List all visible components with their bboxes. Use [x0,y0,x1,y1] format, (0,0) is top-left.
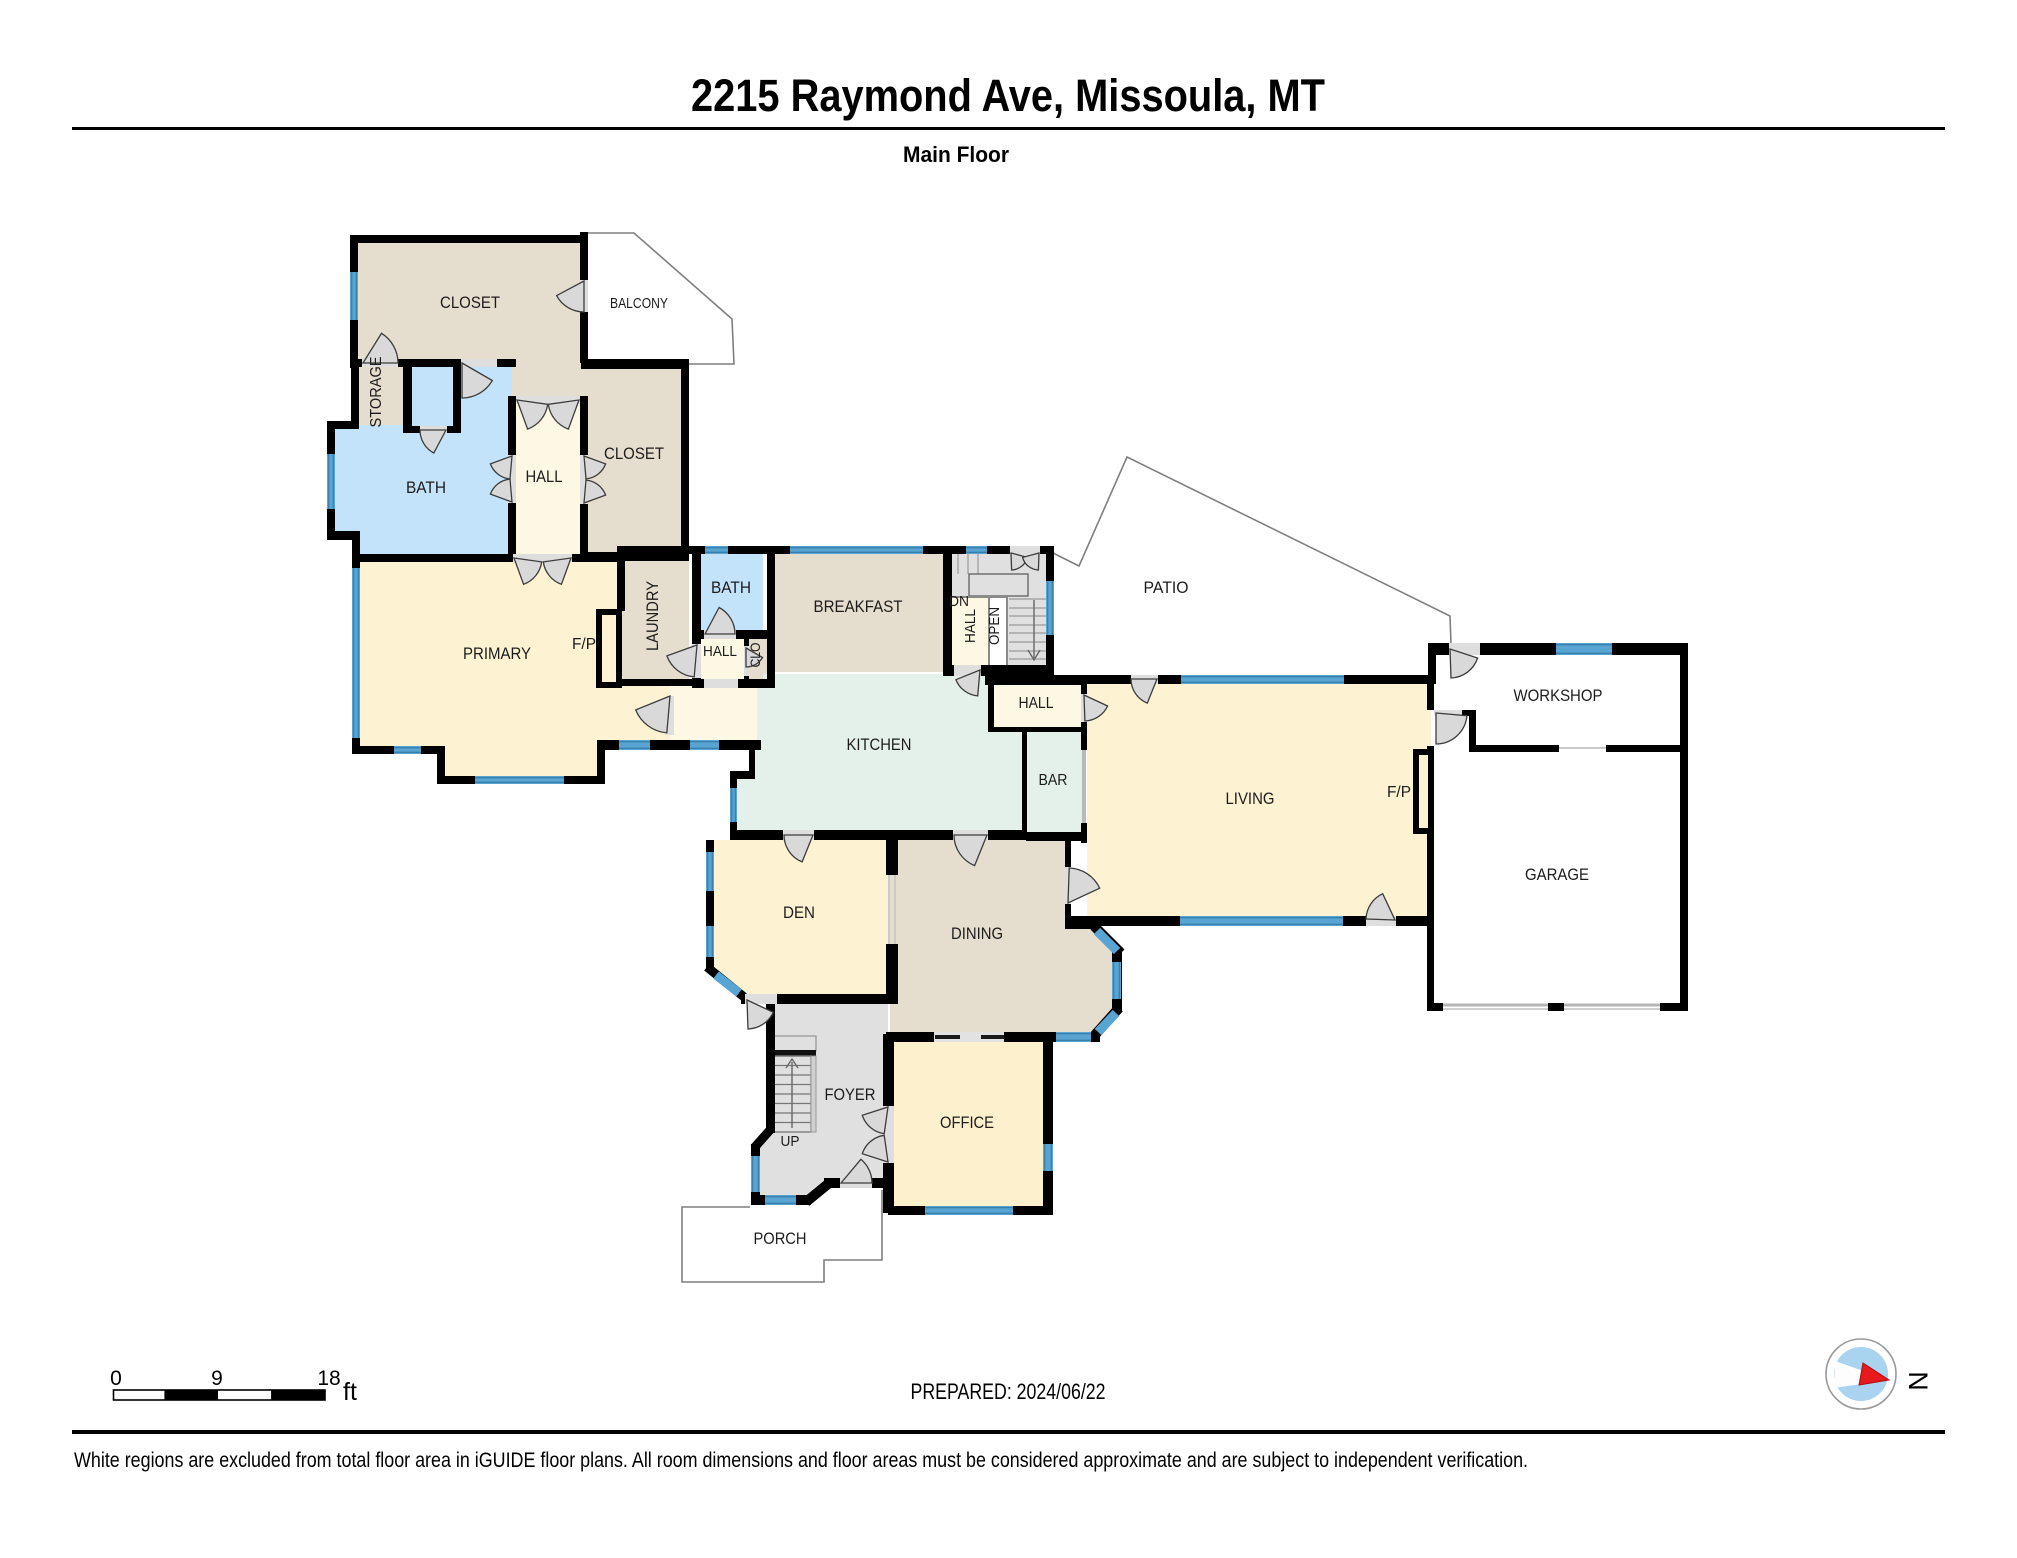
svg-text:HALL: HALL [703,643,737,660]
svg-text:UP: UP [781,1133,800,1150]
svg-text:HALL: HALL [526,467,563,486]
svg-text:OPEN: OPEN [986,607,1003,645]
svg-text:9: 9 [211,1367,223,1390]
svg-text:ft: ft [343,1378,357,1406]
svg-text:WORKSHOP: WORKSHOP [1514,686,1603,705]
svg-text:HALL: HALL [962,609,979,643]
svg-text:STORAGE: STORAGE [368,357,385,428]
svg-text:LAUNDRY: LAUNDRY [643,581,662,651]
svg-text:PRIMARY: PRIMARY [463,644,531,663]
svg-text:LIVING: LIVING [1226,789,1275,808]
svg-text:PREPARED: 2024/06/22: PREPARED: 2024/06/22 [911,1379,1106,1404]
svg-text:HALL: HALL [1019,695,1054,712]
svg-text:DINING: DINING [951,924,1003,943]
svg-text:CLOSET: CLOSET [604,444,664,463]
svg-text:BALCONY: BALCONY [610,295,668,312]
svg-text:OFFICE: OFFICE [940,1113,994,1132]
svg-text:18: 18 [317,1367,340,1390]
svg-text:2215 Raymond Ave, Missoula, MT: 2215 Raymond Ave, Missoula, MT [691,70,1325,121]
svg-text:White regions are excluded fro: White regions are excluded from total fl… [74,1449,1528,1472]
svg-text:BATH: BATH [406,478,446,497]
svg-text:PORCH: PORCH [754,1229,807,1248]
svg-text:BAR: BAR [1039,772,1068,789]
svg-text:Main Floor: Main Floor [903,142,1009,167]
svg-text:N: N [1903,1371,1933,1391]
svg-text:DEN: DEN [783,903,815,922]
svg-text:FOYER: FOYER [825,1085,876,1104]
svg-text:KITCHEN: KITCHEN [847,735,912,754]
svg-text:CLO: CLO [747,642,763,667]
svg-text:PATIO: PATIO [1144,578,1189,597]
svg-text:F/P: F/P [572,636,596,653]
svg-text:F/P: F/P [1387,784,1411,801]
svg-text:BREAKFAST: BREAKFAST [814,597,903,616]
svg-text:DN: DN [949,593,969,610]
svg-text:0: 0 [110,1367,122,1390]
svg-text:CLOSET: CLOSET [440,293,500,312]
svg-text:BATH: BATH [711,578,751,597]
svg-text:GARAGE: GARAGE [1525,865,1589,884]
